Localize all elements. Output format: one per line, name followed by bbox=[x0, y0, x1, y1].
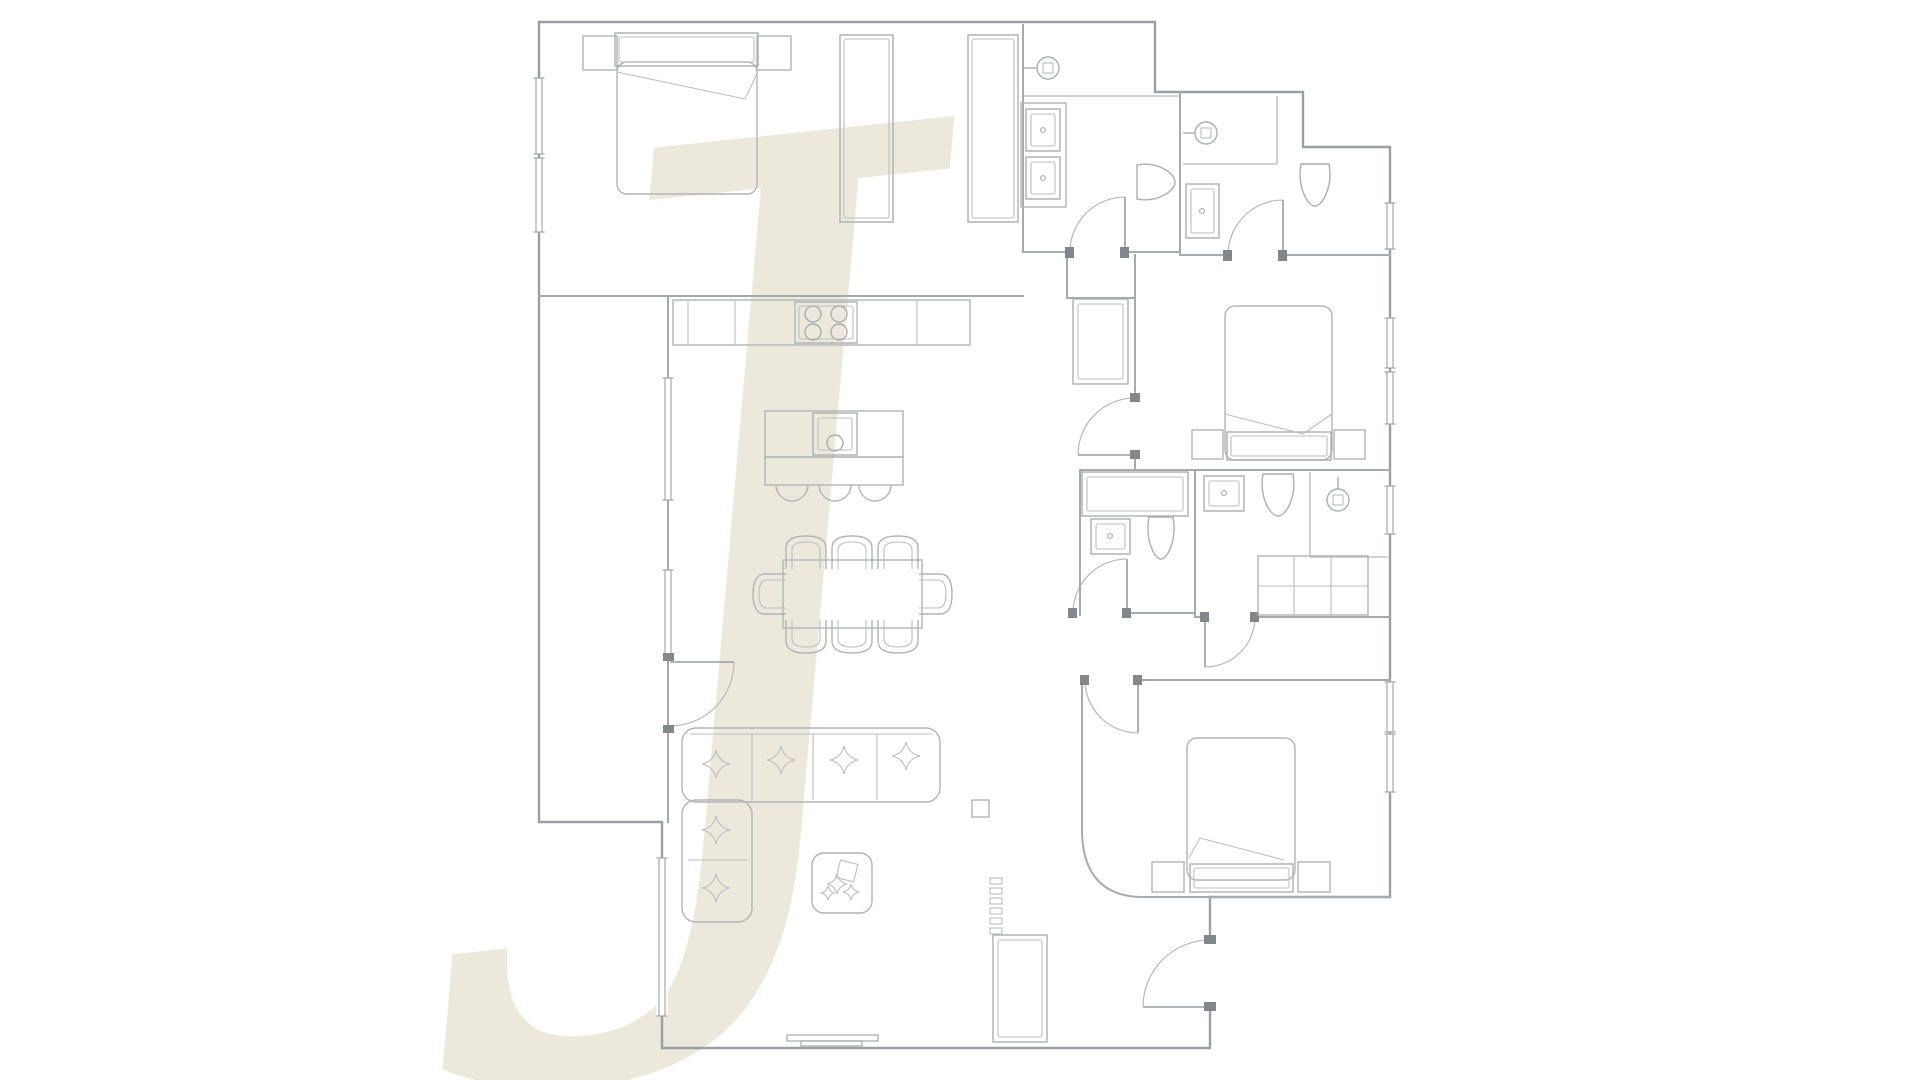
sink-bathB bbox=[1204, 476, 1244, 511]
nightstand-bed3-r bbox=[1298, 862, 1330, 892]
bed2-fold-1 bbox=[1225, 414, 1303, 434]
window-bedroom2-2-mask bbox=[1385, 372, 1396, 424]
door-bathB-swing-arc bbox=[1205, 617, 1255, 667]
bed2-fold-2 bbox=[1303, 414, 1332, 434]
sink-dot bbox=[1200, 209, 1205, 214]
door-terrace-jamb bbox=[663, 725, 674, 733]
shower-head-bathB-rose bbox=[1327, 489, 1349, 511]
window-living-3 bbox=[657, 858, 668, 1016]
sink-bathA-inner bbox=[1096, 524, 1125, 549]
sink-dot bbox=[1041, 128, 1046, 133]
window-living-1 bbox=[663, 378, 674, 500]
shower-head-master-core bbox=[1043, 63, 1053, 73]
door-bath2-jamb bbox=[1278, 250, 1287, 261]
window-bathB-mask bbox=[1385, 486, 1396, 534]
window-bedroom3-1 bbox=[1385, 682, 1396, 732]
door-bathA-jamb bbox=[1068, 608, 1077, 618]
window-bedroom3-2-mask bbox=[1385, 734, 1396, 792]
toilet-bath2 bbox=[1300, 164, 1330, 206]
nightstand-bed3-l bbox=[1152, 862, 1184, 892]
shower-head-master bbox=[1023, 57, 1059, 79]
window-masterbed-1 bbox=[534, 78, 545, 154]
door-bedroom2-swing-arc bbox=[1078, 398, 1135, 455]
door-bedroom3-jamb bbox=[1133, 675, 1142, 685]
window-bedroom2-1-mask bbox=[1385, 318, 1396, 368]
toilet-bathA bbox=[1148, 517, 1174, 559]
hall-closet bbox=[1073, 299, 1128, 384]
hall-closet-inner bbox=[1078, 304, 1123, 379]
bathA-cabinet-inner bbox=[1087, 477, 1183, 511]
window-masterbed-2-mask bbox=[534, 158, 545, 232]
bathA-cabinet-outer bbox=[1082, 472, 1188, 516]
radiator-segment bbox=[990, 898, 1002, 904]
door-bathB bbox=[1200, 612, 1259, 667]
shower-heads bbox=[1023, 57, 1349, 511]
door-bedroom3-swing-arc bbox=[1085, 680, 1138, 733]
floor-plan-svg: J bbox=[0, 0, 1920, 1080]
toilets bbox=[1137, 164, 1330, 559]
shower-head-master-rose bbox=[1037, 57, 1059, 79]
toilet-masterbath bbox=[1137, 164, 1175, 200]
sink-bathB-inner bbox=[1209, 481, 1239, 506]
window-bedroom3-1-mask bbox=[1385, 682, 1396, 732]
wardrobe-b bbox=[968, 35, 1018, 222]
window-living-2 bbox=[663, 570, 674, 654]
headboard-bed2 bbox=[1227, 432, 1331, 460]
door-bathA-jamb bbox=[1122, 608, 1131, 618]
window-bathB bbox=[1385, 486, 1396, 534]
door-bedroom2-jamb bbox=[1130, 393, 1140, 402]
wardrobe-b-inner bbox=[972, 39, 1014, 218]
sink-dot bbox=[1041, 176, 1046, 181]
shower-head-bath2 bbox=[1183, 122, 1217, 144]
shower-head-bath2-core bbox=[1201, 128, 1211, 138]
watermark: J bbox=[325, 0, 1061, 1080]
vanity-sink-1 bbox=[1026, 109, 1060, 151]
sink-bath2-inner bbox=[1191, 189, 1214, 233]
headboard-bed2-inner bbox=[1231, 436, 1327, 456]
mattress-bed2 bbox=[1225, 306, 1332, 460]
shower-head-bath2-rose bbox=[1195, 122, 1217, 144]
headboard-bed3-inner bbox=[1194, 868, 1289, 888]
door-entry-jamb bbox=[1204, 1002, 1216, 1011]
door-bedroom3-jamb bbox=[1080, 675, 1089, 685]
door-entry bbox=[1143, 935, 1216, 1011]
door-bedroom2-jamb bbox=[1130, 450, 1140, 459]
shower-head-bathB-core bbox=[1333, 495, 1343, 505]
door-bathA bbox=[1068, 559, 1131, 618]
door-bath2-swing-arc bbox=[1228, 200, 1283, 255]
door-bath2-jamb bbox=[1223, 250, 1232, 261]
window-bedroom2-2 bbox=[1385, 372, 1396, 424]
sink-bath2 bbox=[1186, 184, 1219, 238]
window-living-3-mask bbox=[657, 858, 668, 1016]
vanity-counter bbox=[1021, 103, 1066, 207]
door-terrace-jamb bbox=[663, 653, 674, 661]
sink-bathA bbox=[1091, 519, 1130, 554]
door-bath2 bbox=[1223, 200, 1287, 261]
vanity-sink-1-inner bbox=[1031, 114, 1055, 146]
vanity-sink-2-inner bbox=[1031, 162, 1055, 194]
radiator-segment bbox=[990, 878, 1002, 884]
wall-bedroom3-curve bbox=[1082, 833, 1140, 897]
bathA-cabinet bbox=[1082, 472, 1188, 516]
door-entry-jamb bbox=[1204, 935, 1216, 944]
door-masterbath-jamb bbox=[1065, 247, 1074, 258]
sink-dot bbox=[1222, 491, 1227, 496]
hall-closet-outer bbox=[1073, 299, 1128, 384]
bed3-fold-1 bbox=[1189, 838, 1200, 858]
entry-cabinet-inner bbox=[998, 940, 1042, 1037]
window-bedroom2-1 bbox=[1385, 318, 1396, 368]
radiator-segment bbox=[990, 888, 1002, 894]
toilet-bathB bbox=[1262, 474, 1294, 516]
door-masterbath-swing-arc bbox=[1070, 197, 1125, 252]
window-living-2-mask bbox=[663, 570, 674, 654]
bed3-fold-2 bbox=[1200, 838, 1284, 860]
sink-dot bbox=[1108, 534, 1113, 539]
nightstand-bed2-r bbox=[1334, 430, 1365, 459]
door-masterbath-jamb bbox=[1120, 247, 1129, 258]
headboard-bed3 bbox=[1190, 864, 1293, 892]
door-bathB-jamb bbox=[1200, 612, 1209, 622]
door-bedroom2 bbox=[1078, 393, 1140, 459]
vanity-sink-2 bbox=[1026, 157, 1060, 199]
wardrobe-b-outer bbox=[968, 35, 1018, 222]
window-bath2-mask bbox=[1385, 203, 1396, 249]
door-entry-swing-arc bbox=[1143, 940, 1210, 1007]
shower-head-bathB bbox=[1327, 477, 1349, 511]
window-living-1-mask bbox=[663, 378, 674, 500]
floor-plan-page: J bbox=[0, 0, 1920, 1080]
watermark-glyph: J bbox=[325, 0, 1061, 1080]
door-masterbath bbox=[1065, 197, 1129, 258]
door-bathA-swing-arc bbox=[1073, 559, 1127, 613]
window-masterbed-1-mask bbox=[534, 78, 545, 154]
window-bath2 bbox=[1385, 203, 1396, 249]
window-bedroom3-2 bbox=[1385, 734, 1396, 792]
window-masterbed-2 bbox=[534, 158, 545, 232]
nightstand-bed2-l bbox=[1192, 430, 1223, 459]
door-bedroom3 bbox=[1080, 675, 1142, 733]
